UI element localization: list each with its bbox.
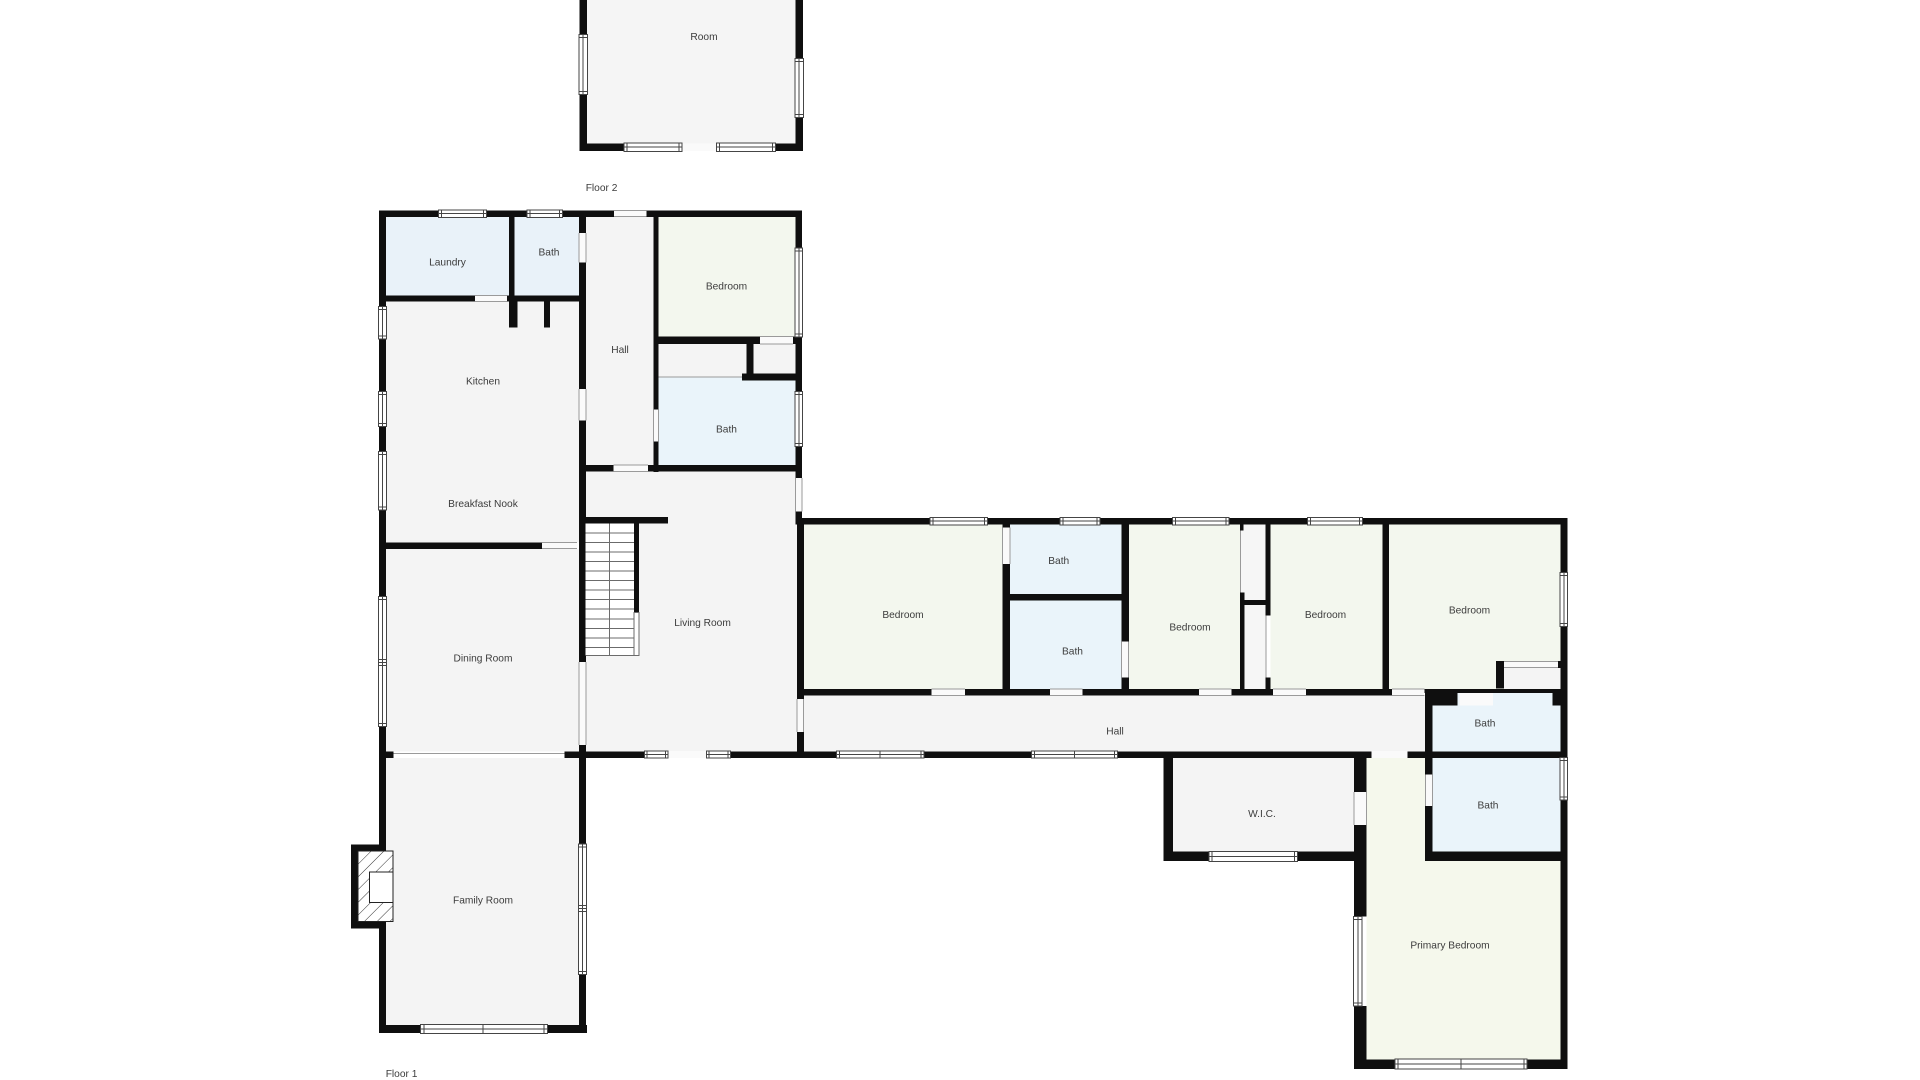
svg-text:W.I.C.: W.I.C.	[1248, 809, 1276, 820]
svg-text:Bath: Bath	[716, 425, 737, 436]
svg-text:Bath: Bath	[1478, 801, 1499, 812]
svg-text:Hall: Hall	[611, 345, 629, 356]
svg-text:Bath: Bath	[1475, 719, 1496, 730]
svg-text:Bath: Bath	[1048, 556, 1069, 567]
svg-text:Primary Bedroom: Primary Bedroom	[1410, 940, 1489, 951]
svg-text:Bedroom: Bedroom	[1449, 606, 1490, 617]
svg-text:Bath: Bath	[1062, 646, 1083, 657]
svg-text:Breakfast Nook: Breakfast Nook	[448, 499, 519, 510]
svg-text:Hall: Hall	[1106, 726, 1124, 737]
svg-text:Living Room: Living Room	[674, 618, 731, 629]
svg-text:Bedroom: Bedroom	[1169, 622, 1210, 633]
svg-text:Bedroom: Bedroom	[882, 610, 923, 621]
svg-text:Floor 1: Floor 1	[386, 1069, 418, 1080]
svg-text:Family Room: Family Room	[453, 895, 513, 906]
svg-text:Laundry: Laundry	[429, 258, 467, 269]
svg-text:Kitchen: Kitchen	[466, 377, 500, 388]
svg-text:Bedroom: Bedroom	[706, 282, 747, 293]
svg-text:Bedroom: Bedroom	[1305, 610, 1346, 621]
svg-text:Floor 2: Floor 2	[586, 183, 618, 194]
svg-text:Room: Room	[690, 32, 717, 43]
svg-text:Bath: Bath	[539, 248, 560, 259]
svg-text:Dining Room: Dining Room	[454, 654, 513, 665]
